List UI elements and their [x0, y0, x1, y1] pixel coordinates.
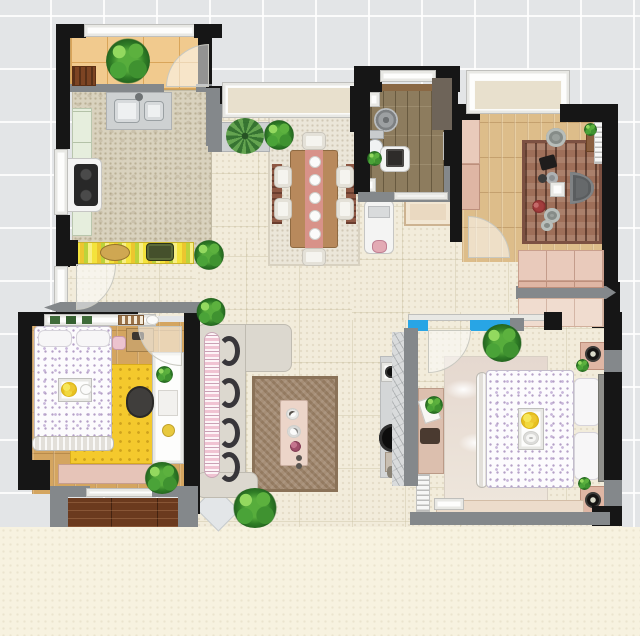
wall: [410, 512, 610, 525]
floor-cushion: [541, 220, 553, 231]
potted-plant: [482, 324, 522, 362]
kitchen-window: [54, 149, 68, 215]
desk-chair: [126, 386, 154, 418]
place-setting: [309, 174, 321, 186]
shelf-books: [66, 316, 76, 324]
serving-plate: [286, 408, 299, 420]
potted-plant: [226, 118, 264, 154]
desk-papers: [158, 390, 178, 416]
wall: [544, 312, 562, 330]
wall: [354, 92, 370, 194]
wall: [184, 302, 200, 514]
breakfast-plate: [523, 431, 539, 445]
potted-plant: [232, 488, 278, 528]
potted-plant: [156, 366, 173, 383]
dining-chair: [336, 166, 354, 188]
sink-basin: [144, 101, 164, 121]
sofa-cushion: [218, 418, 240, 448]
potted-plant: [578, 477, 591, 490]
bedroom-bench-mat: [58, 464, 154, 484]
tv-feature-wall: [392, 332, 404, 486]
shelf-books: [50, 316, 60, 324]
wall: [208, 104, 222, 152]
serving-plate: [287, 425, 301, 438]
flower-bouquet: [521, 412, 539, 429]
shelf-bowl: [146, 315, 159, 325]
potted-plant: [264, 120, 294, 150]
bed-pillow: [574, 378, 600, 426]
bed-pillow: [574, 432, 600, 480]
place-setting: [309, 156, 321, 168]
bread-basket: [100, 244, 130, 261]
dining-chair: [336, 198, 354, 220]
dining-bay-sill: [227, 87, 353, 114]
shower-head: [374, 108, 398, 132]
wall: [604, 350, 622, 372]
place-setting: [309, 210, 321, 222]
sofa-cushion: [218, 452, 240, 482]
potted-plant: [194, 240, 224, 270]
kitchen-tray: [146, 243, 174, 261]
bath-shelf: [378, 84, 438, 91]
wall: [178, 486, 198, 527]
wall: [56, 37, 70, 149]
dining-chair: [302, 248, 326, 266]
tray-plate: [80, 384, 92, 395]
dining-chair: [274, 198, 292, 220]
sofa-cushion: [218, 336, 240, 366]
master-wardrobe: [604, 372, 622, 480]
wall: [18, 460, 50, 490]
potted-plant: [144, 462, 180, 494]
potted-plant: [196, 298, 226, 326]
wall: [602, 104, 618, 288]
floor-cushion: [546, 128, 566, 147]
cooktop: [74, 164, 98, 206]
shelf-box: [118, 315, 144, 325]
cup: [296, 455, 302, 461]
sink-basin: [114, 99, 140, 123]
wall: [66, 240, 78, 266]
balcony-threshold: [86, 488, 156, 497]
floor-plan: [0, 0, 640, 636]
cup: [296, 463, 302, 469]
potted-plant: [425, 396, 443, 414]
bed-pillow: [38, 330, 72, 347]
kitchen-mat: [74, 242, 194, 264]
desk-lamp: [162, 424, 175, 437]
potted-plant: [584, 123, 597, 136]
flower-bouquet: [61, 382, 77, 397]
study-table: [550, 182, 565, 197]
wall: [404, 328, 418, 486]
place-setting: [309, 192, 321, 204]
vanity-stool: [112, 336, 126, 350]
place-setting: [309, 228, 321, 240]
entry-door-jamb: [54, 266, 68, 308]
table-lamp: [585, 346, 601, 362]
sofa-cushion: [218, 378, 240, 408]
wall: [56, 24, 86, 38]
wall: [18, 324, 32, 470]
laundry-mat: [404, 198, 452, 226]
fruit-bowl: [290, 441, 301, 452]
wall: [432, 78, 452, 130]
hall-wardrobe: [518, 250, 604, 281]
bench-tray: [420, 428, 440, 444]
sink-faucet: [135, 93, 143, 101]
master-radiator: [416, 474, 430, 512]
potted-plant: [576, 359, 589, 372]
washer-panel: [368, 206, 390, 218]
side-table: [434, 498, 464, 510]
wall: [604, 312, 622, 350]
laundry-basket: [372, 240, 387, 253]
dining-chair: [302, 132, 326, 150]
wall: [50, 486, 90, 497]
bedroom-balcony-floor: [66, 498, 178, 527]
bed-pillow: [76, 330, 110, 347]
bath-sliding-door: [394, 192, 448, 200]
bed-footboard: [32, 436, 114, 451]
bottom-cream-band: [0, 527, 640, 636]
potted-plant: [106, 38, 150, 84]
shelf-books: [82, 316, 92, 324]
vanity-counter: [386, 149, 404, 167]
study-bay-sill: [474, 80, 562, 110]
potted-plant: [367, 151, 382, 166]
bath-window: [380, 70, 436, 82]
balcony-window: [84, 24, 196, 37]
dining-chair: [274, 166, 292, 188]
hall-wardrobe-edge: [518, 281, 604, 288]
teapot: [538, 174, 547, 183]
balcony-doormat: [72, 66, 96, 86]
flower-bowl: [532, 200, 546, 213]
